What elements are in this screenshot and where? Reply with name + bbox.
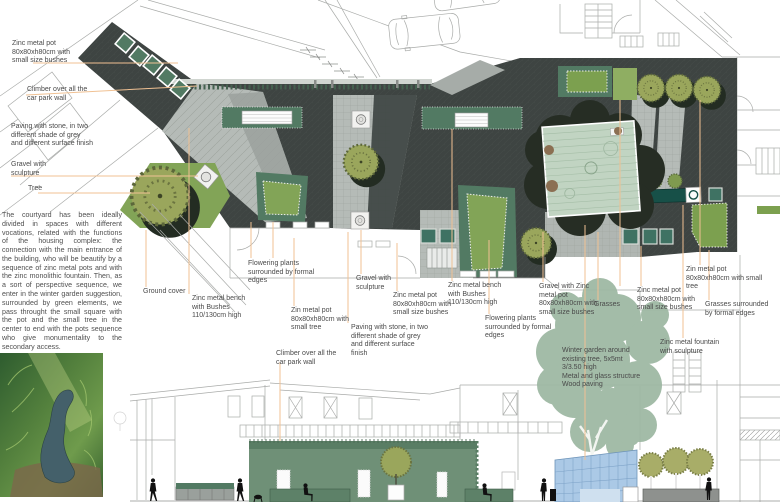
label-paving-2: Paving with stone, in two different shad… [351, 324, 431, 358]
label-flowering-1: Flowering plants surrounded by formal ed… [248, 260, 316, 286]
label-zin-pot-tree-2: Zin metal pot 80x80xh80cm with small tre… [686, 266, 766, 292]
fountain-plan [650, 187, 701, 204]
label-flowering-2: Flowering plants surrounded by formal ed… [485, 315, 553, 341]
gravel-sculpture-pad [351, 212, 369, 229]
presentation-board: Zinc metal pot 80x80xh80cm with small si… [0, 0, 780, 502]
description-paragraph: The courtyard has been ideally divided i… [2, 211, 122, 352]
gravel-sculpture-pad [352, 111, 370, 128]
label-winter-garden: Winter garden around existing tree, 5x5m… [562, 347, 680, 390]
label-climber-top-left: Climber over all the car park wall [27, 86, 93, 103]
bench-plan-1 [242, 111, 292, 124]
label-grasses-1: Grasses [594, 301, 640, 310]
section-small-tree [381, 447, 411, 477]
label-grasses-2: Grasses surrounded by formal edges [705, 301, 777, 318]
label-climber-2: Climber over all the car park wall [276, 350, 340, 367]
label-bench-2: Zinc metal bench with Bushes 110/130cm h… [448, 282, 508, 308]
label-tree: Tree [28, 185, 68, 194]
label-gravel-top-left: Gravel with sculpture [11, 161, 73, 178]
label-gravel-2: Gravel with sculpture [356, 275, 416, 292]
label-paving-top-left: Paving with stone, in two different shad… [11, 123, 93, 149]
label-bench-1: Zinc metal bench with Bushes 110/130cm h… [192, 295, 254, 321]
label-zinc-pot-top-left: Zinc metal pot 80x80xh80cm with small si… [12, 40, 88, 66]
